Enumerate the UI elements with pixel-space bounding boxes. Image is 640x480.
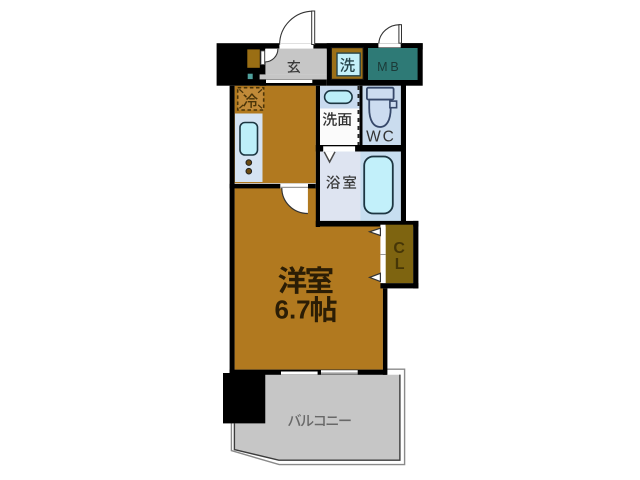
svg-text:C: C — [393, 240, 405, 257]
svg-text:MB: MB — [377, 60, 401, 74]
svg-text:WC: WC — [366, 129, 395, 146]
svg-text:L: L — [395, 256, 405, 273]
svg-text:6.7: 6.7 — [275, 295, 311, 325]
